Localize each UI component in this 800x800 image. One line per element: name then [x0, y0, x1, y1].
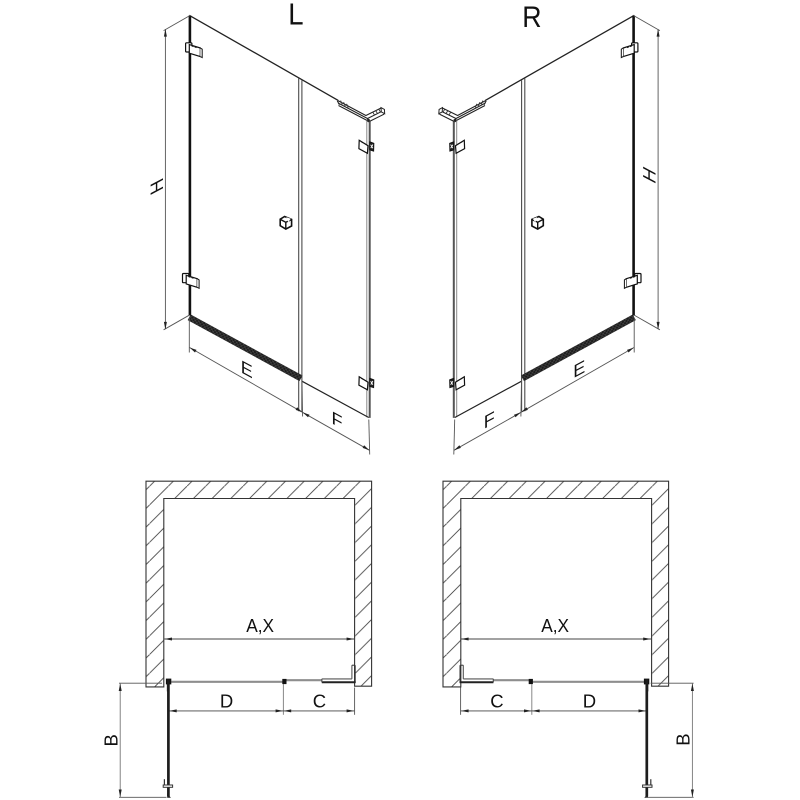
svg-text:D: D	[583, 690, 596, 711]
svg-text:A,X: A,X	[246, 615, 274, 636]
svg-text:B: B	[101, 734, 122, 746]
svg-text:L: L	[288, 0, 303, 31]
svg-text:A,X: A,X	[541, 615, 569, 636]
svg-text:D: D	[220, 690, 233, 711]
svg-text:C: C	[490, 690, 503, 711]
svg-text:B: B	[673, 733, 694, 745]
svg-text:R: R	[522, 1, 541, 34]
svg-text:C: C	[313, 690, 326, 711]
